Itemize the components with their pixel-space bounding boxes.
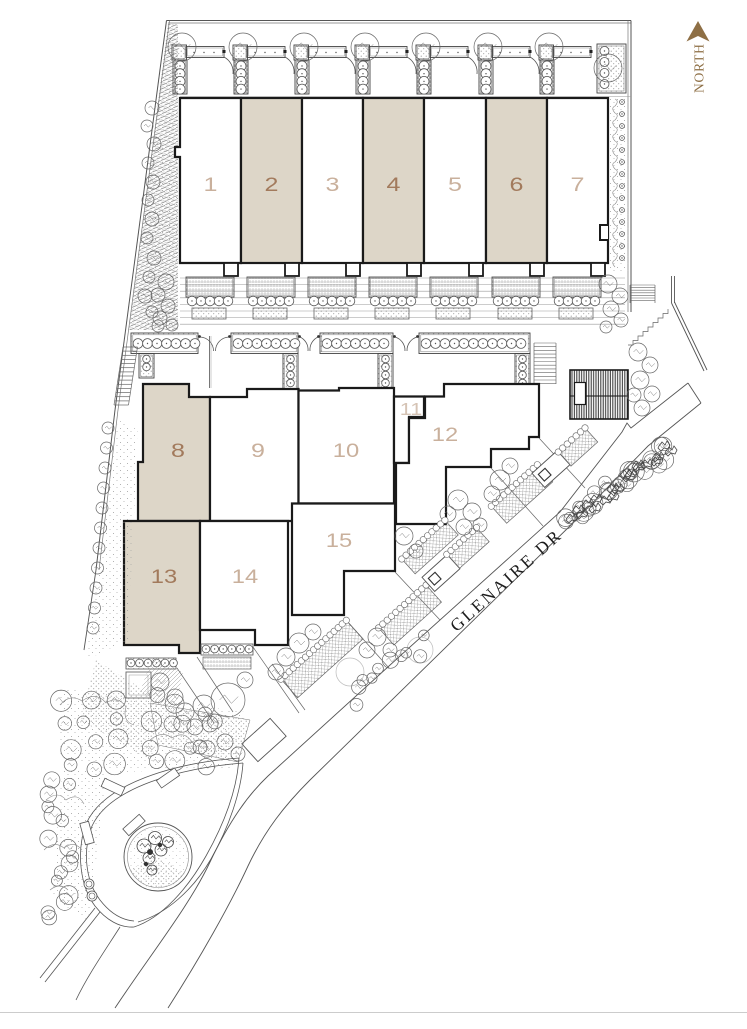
svg-text:15: 15 [326,530,352,551]
svg-text:7: 7 [571,174,585,195]
svg-text:12: 12 [432,424,458,445]
svg-text:11: 11 [400,400,422,420]
svg-text:5: 5 [448,174,462,195]
svg-text:14: 14 [232,566,258,587]
svg-text:8: 8 [171,440,185,461]
svg-text:2: 2 [265,174,279,195]
svg-text:3: 3 [326,174,340,195]
svg-text:13: 13 [151,566,177,587]
svg-text:4: 4 [387,174,401,195]
svg-text:1: 1 [204,174,218,195]
svg-text:10: 10 [333,440,359,461]
svg-text:9: 9 [251,440,265,461]
svg-text:NORTH: NORTH [692,43,707,93]
svg-text:6: 6 [510,174,524,195]
